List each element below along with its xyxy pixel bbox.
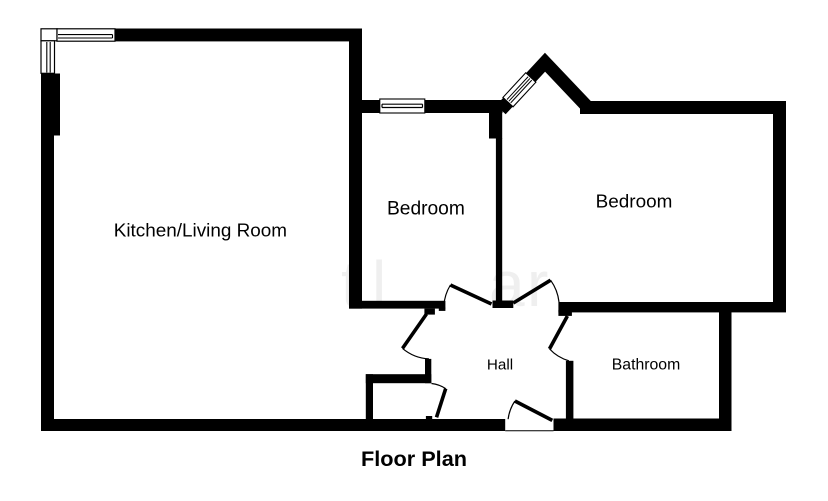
svg-text:Bathroom: Bathroom (612, 356, 681, 373)
svg-text:Hall: Hall (487, 357, 513, 374)
svg-text:Bedroom: Bedroom (387, 198, 465, 219)
svg-text:l: l (372, 248, 386, 320)
svg-text:a: a (489, 248, 525, 320)
svg-text:Floor Plan: Floor Plan (361, 446, 467, 471)
svg-text:Bedroom: Bedroom (596, 191, 673, 212)
svg-text:Kitchen/Living Room: Kitchen/Living Room (114, 220, 287, 241)
